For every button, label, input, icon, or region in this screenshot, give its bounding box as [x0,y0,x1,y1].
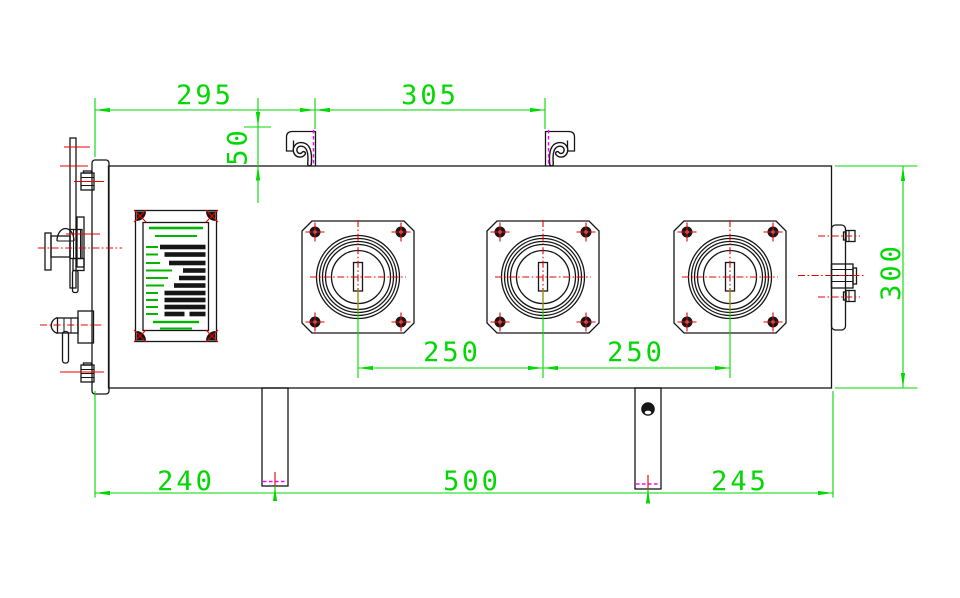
nameplate-text-rows [146,227,206,330]
lifting-hook-right [546,130,575,166]
leg-ball-plug [641,402,655,416]
nameplate-row-label [146,285,164,287]
dimensions: 295 305 50 250 250 [95,80,918,504]
nameplate-row-value [165,252,206,257]
dimension-window-spacing: 250 250 [358,337,730,370]
nameplate-row-label [146,277,168,279]
mounting-leg-1 [262,388,288,492]
nameplate-row-value [160,245,206,250]
nameplate-row-value [190,312,206,317]
cad-drawing-canvas: 295 305 50 250 250 [0,0,960,598]
nameplate-row-value [174,283,206,288]
nameplate-row-label [146,246,158,248]
left-end-flange [38,138,122,394]
dim-text-240: 240 [157,466,215,497]
viewing-window-2 [487,220,599,378]
dim-text-250b: 250 [607,337,665,368]
left-upper-gland [45,229,84,293]
nameplate-title-line [149,227,203,230]
nameplate-footer-line [160,328,192,330]
nameplate-row-label [146,292,158,294]
nameplate-footer-line [153,321,199,323]
nameplate-row-label [146,262,160,264]
nameplate-row-value [179,276,206,281]
dimension-bottom: 240 500 245 [95,391,833,504]
mounting-leg-2 [635,388,661,495]
nameplate-row-value [165,312,185,317]
nameplate-row-label [146,270,172,272]
dimension-top: 295 305 [95,80,545,157]
nameplate-row-label [146,313,158,315]
dimension-height: 300 [835,166,918,388]
dim-text-500: 500 [443,466,501,497]
dim-text-305: 305 [401,80,459,111]
nameplate-row-value [165,298,206,303]
dimension-hook-height: 50 [223,98,272,203]
nameplate-row-value [165,305,206,310]
dim-text-245: 245 [711,466,769,497]
nameplate-row-value [169,261,206,266]
right-end-flange [798,225,864,330]
lifting-hook-left [287,130,316,166]
technical-drawing: 295 305 50 250 250 [0,0,960,598]
nameplate-row-label [146,306,158,308]
dim-text-250a: 250 [423,337,481,368]
nameplate [134,210,218,342]
nameplate-row-value [165,291,206,296]
left-lower-latch [51,311,93,363]
nameplate-row-label [146,254,158,256]
nameplate-row-value [183,268,206,273]
dim-text-50: 50 [223,127,254,166]
viewing-window-1 [302,220,414,378]
nameplate-row-label [146,299,158,301]
nameplate-title-line [155,235,197,237]
viewing-window-3 [674,220,786,378]
dim-text-300: 300 [876,243,907,301]
dim-text-295: 295 [176,80,234,111]
